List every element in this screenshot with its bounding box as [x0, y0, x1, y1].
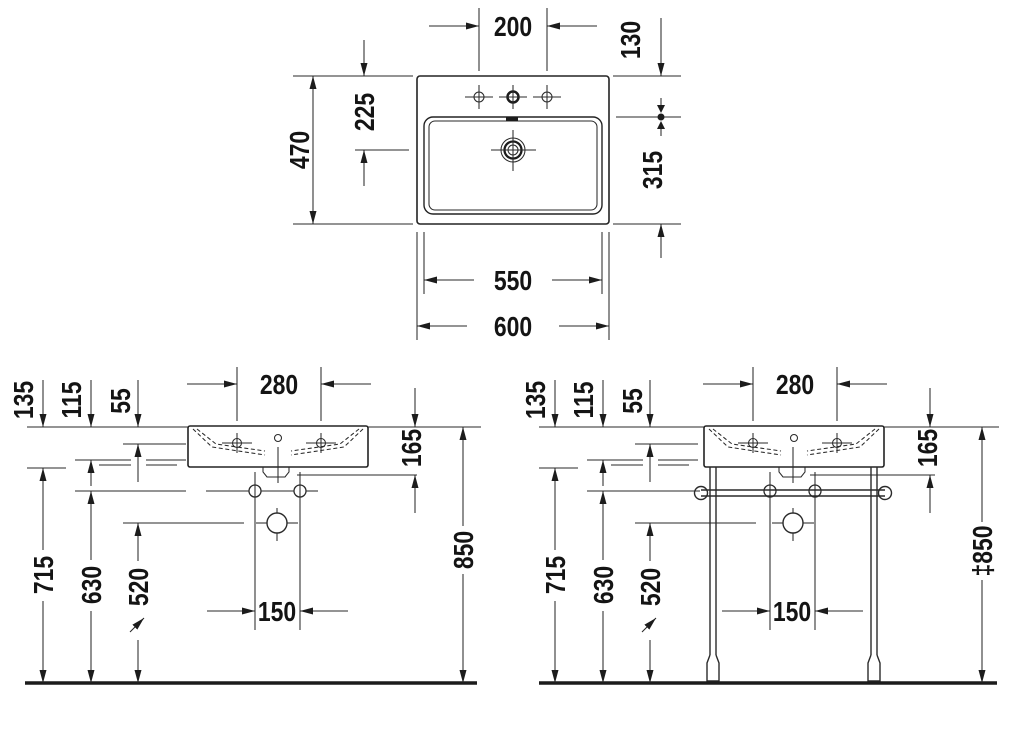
- dim-label-135-console: 135: [521, 381, 552, 419]
- towel-rail: [695, 487, 892, 500]
- dim-label-630-console: 630: [589, 566, 620, 604]
- washbasin-front-outline-console: [704, 426, 884, 467]
- dim-label-715: 715: [29, 556, 60, 594]
- dim-label-200: 200: [494, 12, 532, 43]
- drain-outlet-stub-console: [779, 467, 805, 477]
- faucet-cross-left: [222, 433, 252, 453]
- adjustable-foot-left: [707, 655, 719, 681]
- technical-drawing-page: 200 470 225 130 315: [0, 0, 1024, 729]
- adjustable-arrow-icon-console: [642, 618, 656, 632]
- dim-label-315: 315: [638, 151, 669, 189]
- dim-label-600: 600: [494, 312, 532, 343]
- faucet-hole-center: [499, 85, 527, 109]
- dim-label-55: 55: [106, 388, 137, 414]
- dim-label-280: 280: [260, 370, 298, 401]
- overflow-hole-console: [791, 435, 798, 442]
- dim-label-850: 850: [449, 531, 480, 569]
- dim-label-135: 135: [9, 381, 40, 419]
- faucet-cross-right: [306, 433, 336, 453]
- dim-label-520: 520: [124, 568, 155, 606]
- dim-label-850-adjustable: ‡850: [968, 525, 999, 576]
- adjustable-arrow-icon: [130, 618, 144, 632]
- console-leg-right: [868, 467, 880, 681]
- console-leg-left: [707, 467, 719, 681]
- dim-label-630: 630: [77, 566, 108, 604]
- water-connection: [256, 508, 298, 541]
- dim-label-150: 150: [258, 597, 296, 628]
- water-connection-console: [772, 508, 814, 541]
- washbasin-dimension-drawing: 200 470 225 130 315: [0, 0, 1024, 729]
- dim-label-165-console: 165: [913, 429, 944, 467]
- front-view-console: 135 715 115 630 55 520 280 165 ‡850: [521, 367, 999, 683]
- basin-interior-dashed: [193, 429, 265, 455]
- dim-label-115-console: 115: [569, 381, 600, 418]
- dim-label-150-console: 150: [773, 597, 811, 628]
- faucet-hole-right: [533, 85, 561, 109]
- dim-470-225: 470 225: [285, 40, 413, 224]
- dim-label-550: 550: [494, 266, 532, 297]
- faucet-cross-right-console: [822, 433, 852, 453]
- overflow-marker: [506, 117, 518, 121]
- faucet-hole-left: [465, 85, 493, 109]
- dim-label-130: 130: [616, 21, 647, 59]
- dim-label-55-console: 55: [618, 388, 649, 414]
- front-view: 135 715 115 630 55 520 280 165 850: [9, 367, 481, 683]
- dim-label-225: 225: [350, 93, 381, 131]
- dim-label-280-console: 280: [776, 370, 814, 401]
- drain-outlet-stub: [263, 467, 289, 477]
- adjustable-foot-right: [868, 655, 880, 681]
- drain-hole: [491, 130, 536, 171]
- dim-label-715-console: 715: [541, 556, 572, 594]
- reference-point-dot: [658, 114, 665, 121]
- dim-label-165: 165: [397, 429, 428, 467]
- dim-200: 200: [429, 8, 597, 71]
- dim-label-470: 470: [285, 131, 316, 169]
- dim-130-315: 130 315: [613, 18, 681, 258]
- overflow-hole: [275, 435, 282, 442]
- faucet-cross-left-console: [738, 433, 768, 453]
- top-view: 200 470 225 130 315: [285, 8, 681, 343]
- dim-550-600: 550 600: [417, 232, 609, 343]
- dim-label-520-console: 520: [636, 568, 667, 606]
- dim-label-115: 115: [57, 381, 88, 418]
